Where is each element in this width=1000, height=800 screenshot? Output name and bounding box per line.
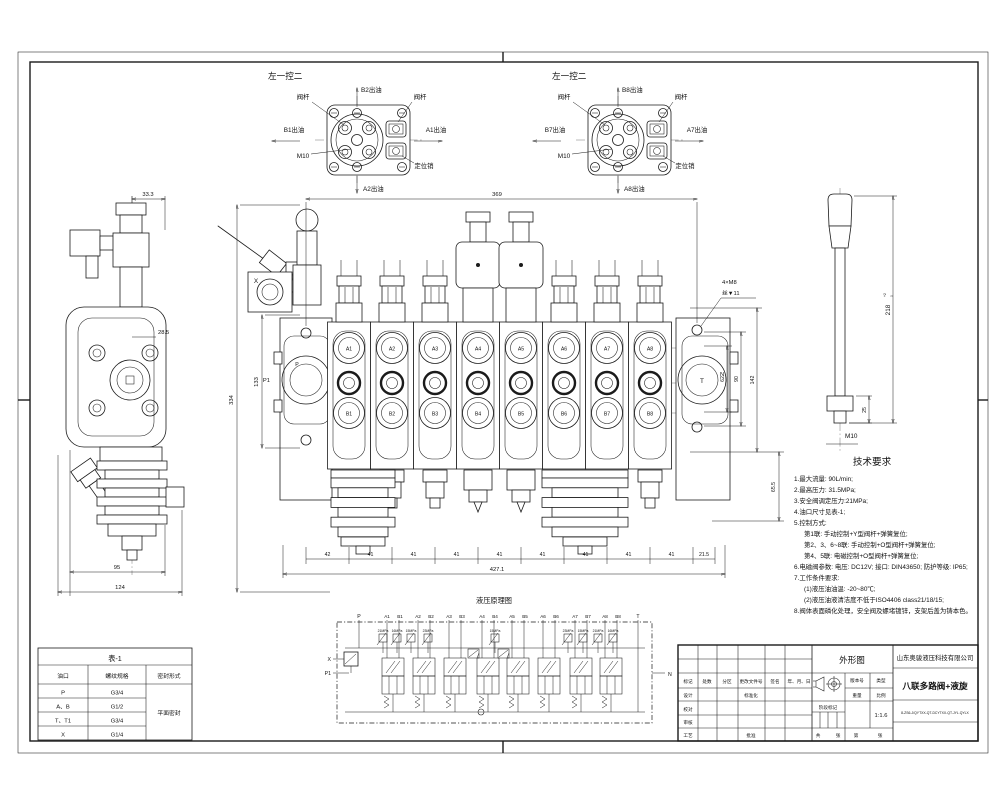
table-header-thread: 螺纹规格 xyxy=(105,672,128,680)
table-row: XG1/4 xyxy=(61,733,124,739)
tb-version-label: 版本号 xyxy=(850,677,864,684)
tb-check: 校对 xyxy=(683,706,693,713)
valve-section-1: A1B1 xyxy=(328,260,371,469)
port-t-label: T xyxy=(700,378,704,385)
tech-line-12: (2)液压油液清洁度不低于ISO4406 class21/18/15; xyxy=(804,595,944,604)
main-view: X P P1 T N A1B1A2B2A3B3A4B4A5B5A6B6A7B7A… xyxy=(218,192,784,592)
table-cell-thread: G3/4 xyxy=(111,719,124,725)
detail-left-title: 左一控二 xyxy=(268,70,303,81)
tech-title: 技术要求 xyxy=(853,456,892,468)
tb-company: 山东奥骏液压科技有限公司 xyxy=(897,653,974,662)
schematic-port-B4: B4 xyxy=(492,614,498,619)
table-header-seal: 密封形式 xyxy=(157,672,180,680)
relief-pressure-label: 16MPa xyxy=(392,629,403,633)
dim-seg-4: 41 xyxy=(454,552,460,558)
valve-section-6: A6B6 xyxy=(543,260,586,469)
valve-stem-label: 阀杆 xyxy=(414,92,427,101)
schematic-section-5: A5B5 xyxy=(498,614,529,712)
spring-symbol xyxy=(384,696,389,708)
schematic-port-A1: A1 xyxy=(384,614,390,619)
dim-seg-7: 41 xyxy=(583,552,589,558)
cad-drawing: 左一控二 B2出油 阀杆 阀杆 B1出油 A1出油 M10 定位销 A2出油 左… xyxy=(0,0,1000,800)
valve-section-3: A3B3 xyxy=(414,260,457,508)
tb-col-docno: 更改文件号 xyxy=(740,678,763,685)
table-title: 表-1 xyxy=(108,654,122,663)
table-row: T、T1G3/4 xyxy=(55,719,124,725)
port-table: 表-1 油口 螺纹规格 密封形式 平面密封 PG3/4A、BG1/2T、T1G3… xyxy=(38,648,192,740)
tb-sheet-index: 第 xyxy=(854,732,859,739)
detail-view-right xyxy=(533,88,703,193)
dim-seg-8: 41 xyxy=(626,552,632,558)
side-view: 33.3 28.5 95 124 xyxy=(58,192,184,596)
table-cell-port: P xyxy=(61,691,65,697)
tb-col-date: 年、月、日 xyxy=(788,678,811,685)
port-label-B3: B3 xyxy=(432,412,438,418)
dim-427.1: 427.1 xyxy=(490,567,505,573)
dim-seg-6: 41 xyxy=(540,552,546,558)
relief-pressure-label: 23MPa xyxy=(423,629,434,633)
relief-valve-symbol: 21MPa xyxy=(592,629,603,653)
tb-audit: 审核 xyxy=(683,719,693,726)
spring-symbol xyxy=(602,696,607,708)
schematic-body: A1B1A2B2A3B3A4B4A5B5A6B6A7B7A8B821MPa16M… xyxy=(333,614,665,715)
tech-line-13: 8.阀体表面磷化处理，安全阀及螺堵镀锌，支架后盖为铸本色。 xyxy=(794,606,972,615)
port-b1-label: B1出油 xyxy=(284,125,305,134)
port-label-B1: B1 xyxy=(346,412,352,418)
valve-section-4: A4B4 xyxy=(456,212,500,512)
port-label-B8: B8 xyxy=(647,412,653,418)
tech-line-2: 2.最高压力: 31.5MPa; xyxy=(794,485,856,494)
port-label-A5: A5 xyxy=(518,347,524,353)
dim-218-tol-up: +2 xyxy=(883,293,887,297)
port-a7-label: A7出油 xyxy=(687,125,708,134)
schematic-port-B5: B5 xyxy=(522,614,528,619)
tech-line-4: 4.油口尺寸见表-1; xyxy=(794,507,845,516)
relief-pressure-label: 15MPa xyxy=(490,629,501,633)
table-rows: PG3/4A、BG1/2T、T1G3/4XG1/4 xyxy=(55,691,124,739)
tech-line-1: 1.最大流量: 90L/min; xyxy=(794,474,853,483)
thread-m10-label: M10 xyxy=(558,153,571,160)
relief-pressure-label: 15MPa xyxy=(578,629,589,633)
dim-28.5: 28.5 xyxy=(158,330,169,336)
dim-369: 369 xyxy=(492,192,502,198)
port-a8-label: A8出油 xyxy=(624,184,645,193)
schematic-port-p1: P1 xyxy=(325,671,331,677)
dim-334: 334 xyxy=(229,394,235,404)
dim-124: 124 xyxy=(115,585,125,591)
dim-seg-5: 41 xyxy=(497,552,503,558)
note-4xm8: 4×M8 xyxy=(722,280,737,286)
tb-col-zone: 分区 xyxy=(722,678,732,685)
schematic-port-A7: A7 xyxy=(572,614,578,619)
tb-approve: 批准 xyxy=(746,732,756,739)
schematic-section-3: A3B3 xyxy=(444,614,466,712)
port-label-A1: A1 xyxy=(346,347,352,353)
bellows-boot-right xyxy=(542,470,628,554)
port-label-A2: A2 xyxy=(389,347,395,353)
port-label-A3: A3 xyxy=(432,347,438,353)
port-label-A6: A6 xyxy=(561,347,567,353)
detail-view-left xyxy=(272,88,442,193)
port-b7-label: B7出油 xyxy=(545,125,566,134)
spring-symbol xyxy=(540,696,545,708)
tech-line-9: 6.电磁阀参数: 电压: DC12V; 接口: DIN43650; 防护等级: … xyxy=(794,562,968,571)
main-view-sections: A1B1A2B2A3B3A4B4A5B5A6B6A7B7A8B8 xyxy=(328,212,672,554)
port-b8-label: B8出油 xyxy=(622,85,643,94)
handle-view: M10 25 218 +2 0 xyxy=(826,188,897,452)
dim-65.5: 65.5 xyxy=(771,482,777,492)
tb-sheet-total: 共 xyxy=(816,732,821,739)
tech-requirements: 技术要求 1.最大流量: 90L/min;2.最高压力: 31.5MPa;3.安… xyxy=(794,456,972,615)
tech-line-5: 5.控制方式: xyxy=(794,518,827,527)
port-b2-label: B2出油 xyxy=(361,85,382,94)
relief-pressure-label: 21MPa xyxy=(378,629,389,633)
tb-col-sign: 签名 xyxy=(770,678,779,685)
tb-sheet-unit2: 张 xyxy=(878,732,883,739)
spring-symbol xyxy=(479,696,484,708)
tech-line-3: 3.安全阀调定压力:21MPa; xyxy=(794,496,868,505)
dim-133: 133 xyxy=(254,377,260,387)
port-label-B6: B6 xyxy=(561,412,567,418)
dim-90: 90 xyxy=(734,376,740,382)
schematic-port-B2: B2 xyxy=(428,614,434,619)
table-cell-port: A、B xyxy=(56,705,70,711)
tb-type-label: 类型 xyxy=(876,677,886,684)
table-header-port: 油口 xyxy=(57,672,69,680)
schematic-port-x: X xyxy=(328,657,332,663)
table-cell-port: T、T1 xyxy=(55,719,71,725)
table-cell-thread: G1/2 xyxy=(111,705,124,711)
schematic-port-B7: B7 xyxy=(585,614,591,619)
port-a2-label: A2出油 xyxy=(363,184,384,193)
port-label-B7: B7 xyxy=(604,412,610,418)
tb-sheet-unit1: 张 xyxy=(836,732,841,739)
spring-symbol xyxy=(572,696,577,708)
valve-section-8: A8B8 xyxy=(629,260,672,508)
tb-col-mark: 标记 xyxy=(683,678,693,685)
schematic-port-B8: B8 xyxy=(615,614,621,619)
relief-pressure-label: 23MPa xyxy=(563,629,574,633)
tb-design: 设计 xyxy=(683,692,693,699)
relief-pressure-label: 16MPa xyxy=(608,629,619,633)
spring-symbol xyxy=(415,696,420,708)
valve-section-7: A7B7 xyxy=(586,260,629,469)
table-seal-value: 平面密封 xyxy=(157,709,180,717)
schematic-port-A5: A5 xyxy=(509,614,515,619)
dim-seg-3: 41 xyxy=(411,552,417,558)
table-cell-port: X xyxy=(61,733,65,739)
handle-thread-label: M10 xyxy=(845,433,858,440)
projection-symbol-icon xyxy=(813,676,842,692)
dim-142: 142 xyxy=(750,376,756,385)
schematic-port-p: P xyxy=(357,614,361,620)
valve-section-5: A5B5 xyxy=(499,212,543,512)
tech-line-10: 7.工作条件要求: xyxy=(794,573,840,582)
schematic-port-A4: A4 xyxy=(479,614,485,619)
port-label-A7: A7 xyxy=(604,347,610,353)
hydraulic-schematic: 液压原理图 P T X P1 N A1B1A2B2A3B3A4B4A5B5A6B… xyxy=(325,596,672,723)
valve-stem-label: 阀杆 xyxy=(675,92,688,101)
tech-line-8: 第4、5联: 电磁控制+O型阀杆+弹簧复位; xyxy=(804,551,919,560)
tech-line-11: (1)液压油油温: -20~80℃; xyxy=(804,584,876,593)
dim-33.3: 33.3 xyxy=(142,192,153,198)
schematic-port-B1: B1 xyxy=(397,614,403,619)
dim-218: 218 xyxy=(885,304,892,315)
port-p1-label: P1 xyxy=(263,378,270,384)
tb-process: 工艺 xyxy=(683,733,693,738)
relief-valve-symbol: 16MPa xyxy=(391,629,402,653)
relief-valve-symbol: 23MPa xyxy=(562,629,573,653)
dim-seg-1: 42 xyxy=(325,552,331,558)
table-row: A、BG1/2 xyxy=(56,705,123,711)
drawing-sheet: 左一控二 B2出油 阀杆 阀杆 B1出油 A1出油 M10 定位销 A2出油 左… xyxy=(0,0,1000,800)
tb-product-name: 八联多路阀+液旋 xyxy=(901,680,968,691)
schematic-port-A2: A2 xyxy=(415,614,421,619)
schematic-section-6: A6B6 xyxy=(538,614,560,712)
tb-weight-label: 重量 xyxy=(852,692,862,699)
dim-seg-9: 41 xyxy=(669,552,675,558)
table-cell-thread: G3/4 xyxy=(111,691,124,697)
tech-line-7: 第2、3、6~8联: 手动控制+O型阀杆+弹簧复位; xyxy=(804,540,936,549)
port-label-B5: B5 xyxy=(518,412,524,418)
relief-valve-symbol: 15MPa xyxy=(489,629,500,653)
dim-62: 62 xyxy=(720,376,726,382)
port-label-A4: A4 xyxy=(475,347,481,353)
locating-pin-label: 定位销 xyxy=(675,161,695,170)
note-m8-depth: 丝▼11 xyxy=(722,289,740,297)
port-label-B4: B4 xyxy=(475,412,481,418)
spring-symbol xyxy=(509,696,514,708)
detail-views xyxy=(272,88,703,193)
schematic-port-t: T xyxy=(636,614,640,620)
dim-seg-10: 21.5 xyxy=(699,552,709,558)
port-x-label: X xyxy=(254,278,259,285)
tb-drawing-type: 外形图 xyxy=(839,654,865,665)
valve-stem-label: 阀杆 xyxy=(558,92,571,101)
port-p-label: P xyxy=(295,362,299,368)
port-a1-label: A1出油 xyxy=(426,125,447,134)
solenoid-coil-dot xyxy=(476,263,480,267)
bellows-boot-left xyxy=(331,470,395,554)
table-row: PG3/4 xyxy=(61,691,124,697)
thread-m10-label: M10 xyxy=(297,153,310,160)
schematic-port-B3: B3 xyxy=(459,614,465,619)
dim-25: 25 xyxy=(862,407,868,413)
solenoid-coil-dot xyxy=(519,263,523,267)
tb-col-count: 处数 xyxy=(702,678,712,685)
title-block: 标记 处数 分区 更改文件号 签名 年、月、日 设计 校对 审核 工艺 标准化 … xyxy=(678,645,978,741)
tb-stage-mark: 阶段标记 xyxy=(819,704,838,711)
dim-seg-2: 41 xyxy=(368,552,374,558)
schematic-port-B6: B6 xyxy=(553,614,559,619)
table-cell-thread: G1/4 xyxy=(111,733,124,739)
relief-valve-symbol: 23MPa xyxy=(422,629,433,653)
tech-line-6: 第1联: 手动控制+Y型阀杆+弹簧复位; xyxy=(804,529,908,538)
relief-pressure-label: 21MPa xyxy=(593,629,604,633)
port-label-B2: B2 xyxy=(389,412,395,418)
schematic-port-A8: A8 xyxy=(602,614,608,619)
dim-218-tol-dn: 0 xyxy=(890,295,894,297)
schematic-port-A6: A6 xyxy=(540,614,546,619)
relief-pressure-label: 15MPa xyxy=(406,629,417,633)
schematic-title: 液压原理图 xyxy=(476,596,512,605)
schematic-port-A3: A3 xyxy=(446,614,452,619)
dim-95: 95 xyxy=(114,565,120,571)
locating-pin-label: 定位销 xyxy=(414,161,434,170)
spring-symbol xyxy=(446,696,451,708)
schematic-port-n: N xyxy=(668,672,672,678)
tb-standardization: 标准化 xyxy=(744,692,758,699)
tb-part-number: 8-ZS6-J/QYTXX-QT-DCYTXX-QT-JYL.QYLX xyxy=(901,711,969,715)
tb-scale-label: 比例 xyxy=(876,692,886,699)
relief-valve-symbol: 15MPa xyxy=(405,629,416,653)
tech-lines: 1.最大流量: 90L/min;2.最高压力: 31.5MPa;3.安全阀调定压… xyxy=(794,474,972,615)
valve-stem-label: 阀杆 xyxy=(297,92,310,101)
tb-scale-value: 1:1.6 xyxy=(875,713,888,719)
detail-right-title: 左一控二 xyxy=(552,70,587,81)
port-label-A8: A8 xyxy=(647,347,653,353)
